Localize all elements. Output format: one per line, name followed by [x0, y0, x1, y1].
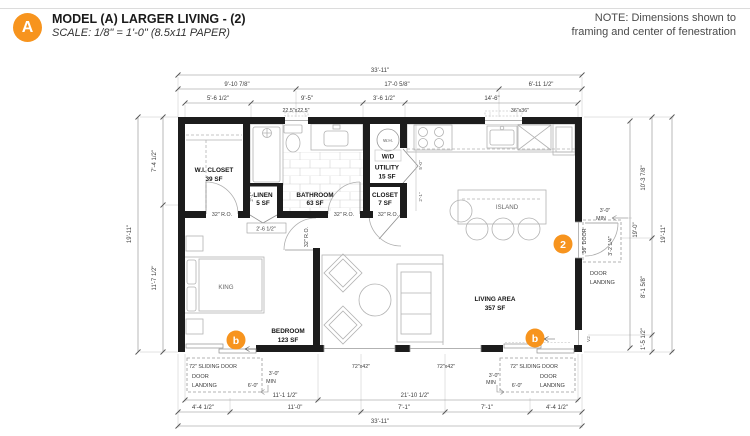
dim-bottom-seg1: 4'-4 1/2" [192, 405, 214, 411]
dim-bottom-span-right: 21'-10 1/2" [401, 393, 430, 399]
room-living-area: 357 SF [485, 305, 506, 312]
vent-label: V2 [586, 336, 591, 342]
fridge [553, 124, 575, 155]
dim-top-seg-left: 9'-10 7/8" [224, 82, 249, 88]
sliding-door-marker-right: b [526, 329, 545, 348]
landing-left-clear: 6'-0" [248, 383, 259, 389]
dim-left-lower: 11'-7 1/2" [152, 266, 158, 291]
round-table [359, 284, 391, 316]
ro-bedroom-door: 32" R.O. [304, 227, 310, 247]
floor-plan-drawing: 33'-11" 9'-10 7/8" 17'-0 5/8" 6'-11 1/2"… [0, 0, 750, 436]
accent-chair-2 [324, 306, 362, 344]
landing-right-label-2: LANDING [540, 383, 565, 389]
linen-door-dim: 2'-6 1/2" [247, 223, 286, 233]
dim-bottom-seg2: 11'-0" [288, 405, 303, 411]
accent-chair-1 [324, 254, 362, 292]
dim-top-sub1: 5'-6 1/2" [207, 96, 229, 102]
svg-text:2'-6 1/2": 2'-6 1/2" [256, 227, 276, 233]
dim-bottom-seg4: 7'-1" [481, 405, 493, 411]
entry-door-marker: 2 [554, 235, 573, 254]
dim-left-upper: 7'-4 1/2" [152, 150, 158, 172]
ro-bathroom-door: 32" R.O. [334, 212, 354, 218]
dim-skylight: 22.5"x22.5" [282, 108, 309, 114]
dim-bottom-seg3: 7'-1" [398, 405, 410, 411]
vanity-sink [311, 124, 363, 150]
svg-text:b: b [532, 333, 538, 345]
wi-closet-door [206, 182, 238, 214]
entry-landing-label-2: LANDING [590, 280, 615, 286]
dim-top-sub3: 3'-6 1/2" [373, 96, 395, 102]
dim-top-seg-mid: 17'-0 5/8" [384, 82, 409, 88]
ro-wic-door: 32" R.O. [212, 212, 232, 218]
dim-left-overall: 19'-11" [127, 225, 133, 243]
island-label: ISLAND [496, 204, 519, 211]
landing-right-clear: 6'-0" [512, 383, 523, 389]
landing-left-label-2: LANDING [192, 383, 217, 389]
room-closet-area: 7 SF [378, 200, 392, 207]
dim-landing-depth: 3'-2 1/4" [608, 236, 614, 256]
svg-text:b: b [233, 335, 239, 347]
kitchen-sink [487, 126, 517, 148]
room-living-name: LIVING AREA [475, 296, 516, 303]
svg-text:2: 2 [560, 239, 566, 251]
dim-right-interior: 19'-0" [633, 222, 639, 237]
entry-door-label: 36" DOOR [582, 228, 588, 253]
dim-right-mid: 8'-1 5/8" [641, 276, 647, 298]
washer-dryer-label: W/D [382, 154, 395, 161]
dim-right-lower: 1'-5 1/2" [641, 328, 647, 350]
entry-door [583, 220, 621, 262]
min-left-2: MIN [266, 379, 276, 385]
hall-closet-door [369, 214, 401, 246]
room-utility-area: 15 SF [378, 174, 395, 181]
room-wi-closet-area: 39 SF [205, 176, 222, 183]
room-bathroom-area: 63 SF [306, 200, 323, 207]
shower [250, 124, 283, 185]
dim-top-seg-right: 6'-11 1/2" [529, 82, 554, 88]
min-left-1: 3'-0" [269, 371, 280, 377]
dim-right-min1: 3'-0" [600, 208, 611, 214]
dishwasher [518, 125, 551, 150]
window-label-right: 72"x42" [437, 364, 455, 370]
landing-left-label-1: DOOR [192, 374, 209, 380]
ro-closet-door: 32" R.O. [378, 212, 398, 218]
water-heater-label: W.H. [383, 138, 393, 143]
window-label-left: 72"x42" [352, 364, 370, 370]
dim-bottom-seg5: 4'-4 1/2" [546, 405, 568, 411]
dim-closet-height: 2'-1" [418, 192, 423, 202]
dim-kitchen-window: 36"x36" [511, 108, 529, 114]
room-wi-closet-name: W.I. CLOSET [195, 167, 234, 174]
landing-right-label-1: DOOR [540, 374, 557, 380]
dim-top-sub4: 14'-6" [484, 96, 499, 102]
min-right-1: 3'-0" [489, 373, 500, 379]
bedroom-door [284, 218, 316, 250]
floor-plan-sheet: A MODEL (A) LARGER LIVING - (2) SCALE: 1… [0, 0, 750, 436]
dim-top-sub2: 9'-5" [301, 96, 313, 102]
dim-top-overall: 33'-11" [371, 68, 389, 74]
min-right-2: MIN [486, 380, 496, 386]
stove [414, 125, 452, 150]
room-utility-name: UTILITY [375, 165, 400, 172]
dim-utility-height: 5'-0" [418, 160, 423, 170]
sofa [397, 264, 443, 342]
room-closet-name: CLOSET [372, 192, 398, 199]
sliding-door-label-right: 72" SLIDING DOOR [510, 364, 558, 370]
room-bathroom-name: BATHROOM [296, 192, 333, 199]
dim-right-min2: MIN [596, 216, 606, 222]
room-linen-name: LINEN [253, 192, 273, 199]
room-linen-area: 5 SF [256, 200, 270, 207]
sliding-door-label-left: 72" SLIDING DOOR [189, 364, 237, 370]
room-bedroom-name: BEDROOM [271, 328, 304, 335]
toilet [284, 125, 302, 152]
sliding-door-marker-left: b [227, 331, 246, 350]
dim-right-overall: 19'-11" [661, 225, 667, 243]
dim-right-upper: 10'-3 7/8" [641, 165, 647, 190]
king-bed-label: KING [218, 284, 233, 291]
window-72x42-right [410, 345, 481, 352]
linen-bifold-door [250, 215, 277, 223]
window-72x42-left [324, 345, 395, 352]
dim-bottom-span-left: 11'-1 1/2" [273, 393, 298, 399]
dim-bottom-overall: 33'-11" [371, 419, 389, 425]
room-bedroom-area: 123 SF [278, 337, 299, 344]
entry-landing-label-1: DOOR [590, 271, 607, 277]
